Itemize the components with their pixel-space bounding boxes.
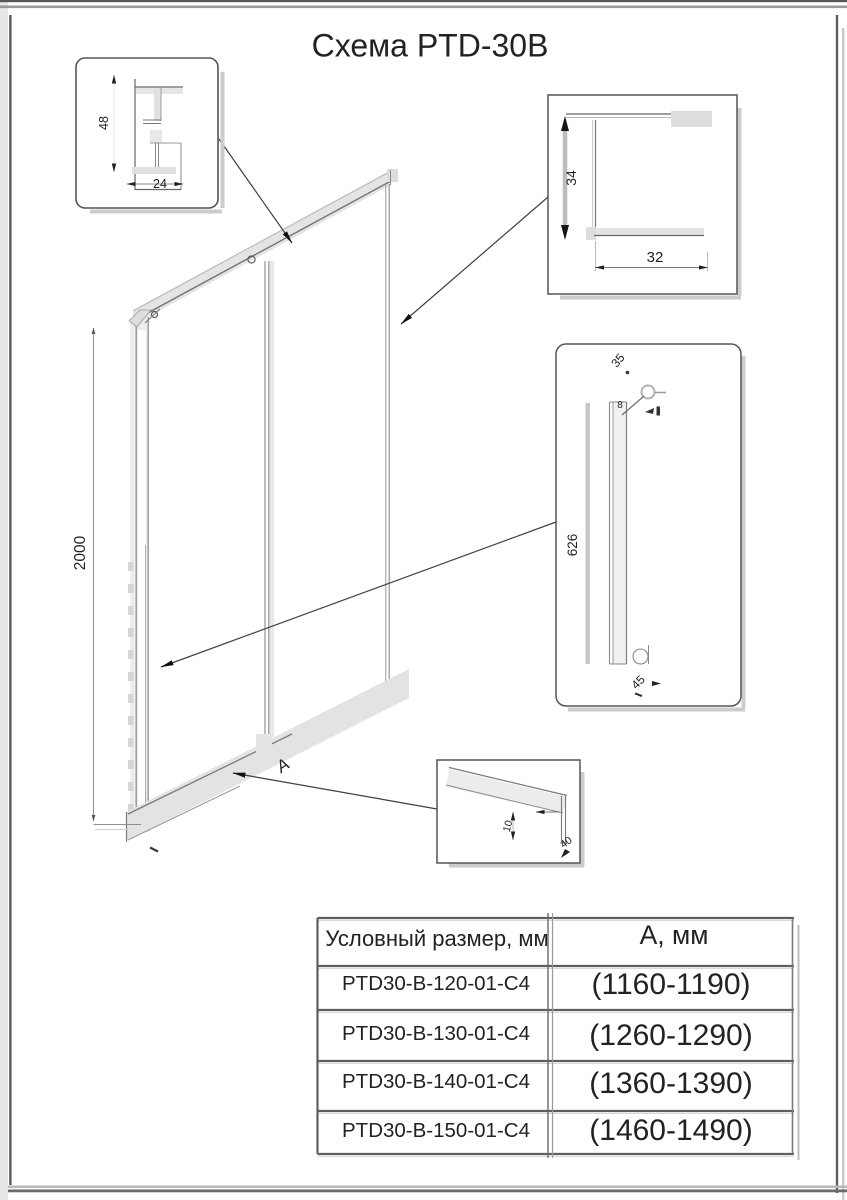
svg-text:626: 626 [565, 534, 580, 557]
svg-text:PTD30-B-120-01-C4: PTD30-B-120-01-C4 [342, 972, 530, 995]
svg-text:PTD30-B-150-01-C4: PTD30-B-150-01-C4 [342, 1119, 530, 1142]
svg-text:34: 34 [563, 170, 579, 186]
svg-text:24: 24 [153, 177, 167, 191]
svg-text:А, мм: А, мм [640, 920, 709, 950]
svg-text:(1160-1190): (1160-1190) [592, 968, 751, 1001]
svg-text:(1260-1290): (1260-1290) [589, 1019, 752, 1052]
svg-text:8: 8 [617, 400, 623, 411]
svg-text:Схема PTD-30B: Схема PTD-30B [312, 28, 549, 64]
svg-text:PTD30-B-130-01-C4: PTD30-B-130-01-C4 [342, 1022, 530, 1045]
svg-text:PTD30-B-140-01-C4: PTD30-B-140-01-C4 [342, 1070, 530, 1093]
svg-text:32: 32 [647, 249, 664, 266]
svg-text:48: 48 [97, 116, 111, 130]
svg-text:(1460-1490): (1460-1490) [589, 1114, 752, 1147]
svg-text:2000: 2000 [72, 535, 89, 570]
svg-text:(1360-1390): (1360-1390) [589, 1067, 752, 1100]
svg-text:Условный размер, мм: Условный размер, мм [325, 926, 548, 951]
